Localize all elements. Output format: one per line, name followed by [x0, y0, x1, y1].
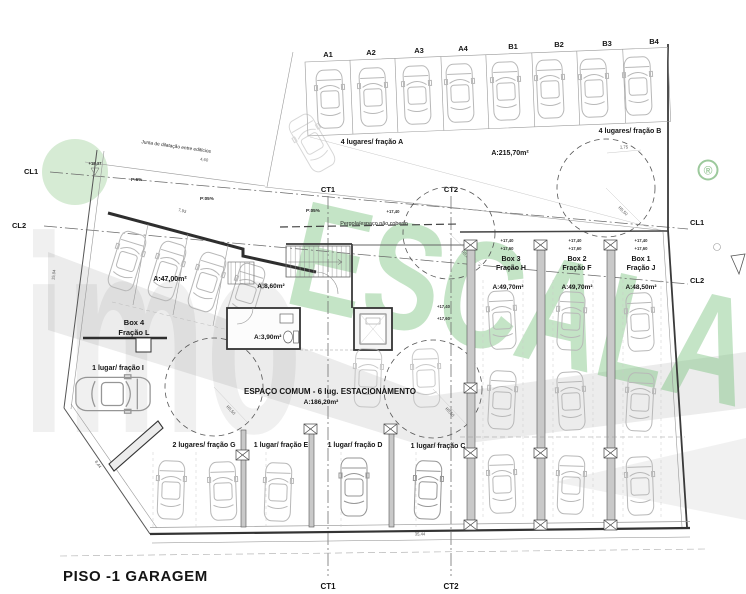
slope-2: P:05%: [200, 196, 214, 201]
bottom-dim-line: [152, 537, 690, 543]
watermark-swoosh-tail: [555, 438, 746, 520]
label-box1-fraction: Fração J: [627, 265, 656, 272]
stall-label-a3: A3: [414, 46, 424, 55]
sink-fixture: [280, 314, 293, 323]
stall-label-a2: A2: [366, 48, 376, 57]
axis-cl2-label-left: CL2: [12, 221, 26, 230]
marker-circle-icon: [714, 244, 721, 251]
label-common-2: A:186,20m²: [304, 399, 340, 406]
car-icon: [490, 61, 523, 120]
level-pergola: +17,40: [387, 209, 401, 214]
label-fracao-g: 2 lugares/ fração G: [172, 442, 236, 449]
stairs-landing: [228, 262, 254, 284]
label-common-1: ESPAÇO COMUM - 6 lug. ESTACIONAMENTO: [244, 387, 416, 396]
label-box4-fraction: Fração L: [118, 328, 150, 337]
label-box2-area: A:49,70m²: [561, 284, 593, 291]
dim-circle2: 1,75: [620, 145, 629, 150]
car-icon: [578, 58, 611, 117]
car-icon: [622, 56, 655, 115]
car-icon: [314, 69, 347, 128]
toilet-fixture: [284, 331, 293, 343]
axis-ct2-label-top: CT2: [444, 185, 458, 194]
stall-label-a4: A4: [458, 44, 468, 53]
label-box2-fraction: Fração F: [562, 265, 592, 272]
stall-label-b3: B3: [602, 39, 612, 48]
label-total-area: A:215,70m²: [491, 150, 529, 157]
dim-junta: 4,60: [200, 156, 209, 162]
slope-3: P:05%: [306, 208, 320, 213]
level-box2-a: +17,40: [569, 238, 583, 243]
stall-label-b1: B1: [508, 42, 518, 51]
label-box3-area: A:49,70m²: [492, 284, 524, 291]
label-fracao-e: 1 lugar/ fração E: [254, 442, 309, 449]
axis-cl1-label-right: CL1: [690, 218, 704, 227]
dim-bottom-total: 35,44: [415, 532, 426, 537]
registered-letter: ®: [704, 164, 713, 178]
toilet-tank: [294, 331, 299, 343]
floor-plan-svg: imo ESCALA ® CL1 CL2 CL1 CL2 CT1 CT2 CT1…: [0, 0, 746, 594]
level-box1-b: +17,60: [635, 246, 649, 251]
box-wall-b: [537, 250, 545, 527]
label-box1-area: A:48,50m²: [625, 284, 657, 291]
label-fracao-a: 4 lugares/ fração A: [341, 139, 403, 146]
note-junta: Junta de dilatação entre edifícios: [141, 139, 212, 155]
right-top-wall: [460, 231, 668, 232]
stall-wall-1: [241, 430, 246, 527]
stall-wall-3: [389, 426, 394, 527]
stall-label-b4: B4: [649, 37, 659, 46]
label-box3-name: Box 3: [501, 256, 520, 263]
label-fracao-c: 1 lugar/ fração C: [411, 443, 466, 450]
level-street: +18,37: [89, 161, 103, 166]
level-core-1: +17,40: [437, 304, 451, 309]
axis-cl1-label-left: CL1: [24, 167, 38, 176]
car-icon: [357, 67, 390, 126]
box-wall-c: [607, 250, 615, 527]
car-icon: [339, 458, 369, 516]
label-fracao-d: 1 lugar/ fração D: [328, 442, 383, 449]
label-fracao-i: 1 lugar/ fração I: [92, 365, 144, 372]
car-icon: [486, 454, 518, 513]
boundary-top-left: [267, 52, 293, 187]
label-fracao-b: 4 lugares/ fração B: [599, 128, 662, 135]
stall-label-b2: B2: [554, 40, 564, 49]
level-box2-b: +17,60: [569, 246, 583, 251]
stall-wall-2: [309, 426, 314, 527]
floor-plan-page: imo ESCALA ® CL1 CL2 CL1 CL2 CT1 CT2 CT1…: [0, 0, 746, 594]
car-icon: [285, 110, 340, 175]
car-icon: [401, 65, 434, 124]
level-core-2: +17,60: [437, 316, 451, 321]
note-pergola: Pergola/espaço não coberto: [340, 221, 407, 227]
car-icon: [534, 59, 567, 118]
label-box4-area: A:47,00m²: [153, 276, 187, 283]
car-icon: [412, 460, 444, 519]
box4-pillar: [136, 338, 151, 352]
axis-ct1-label-bottom: CT1: [320, 582, 336, 591]
slope-1: P:6%: [131, 177, 142, 182]
label-box4-name: Box 4: [124, 318, 145, 327]
stall-label-a1: A1: [323, 50, 333, 59]
axis-ct2-label-bottom: CT2: [443, 582, 459, 591]
dim-radius-2: R5,50: [617, 205, 629, 217]
label-hall-area: A:8,60m²: [257, 283, 285, 290]
label-wc-area: A:3,90m²: [254, 334, 282, 341]
level-box3-b: +17,60: [501, 246, 515, 251]
label-box3-fraction: Fração H: [496, 265, 526, 272]
label-box1-name: Box 1: [631, 256, 650, 263]
page-title: PISO -1 GARAGEM: [63, 568, 208, 585]
level-box1-a: +17,40: [635, 238, 649, 243]
car-icon: [444, 63, 477, 122]
label-box2-name: Box 2: [567, 256, 586, 263]
top-parking-row: A1 A2 A3 A4 B1 B2 B3 B4 4 lugares/ fraçã…: [285, 37, 671, 176]
axis-cl2-label-right: CL2: [690, 276, 704, 285]
bottom-dashed-line: [60, 549, 706, 556]
level-box3-a: +17,40: [501, 238, 515, 243]
axis-ct1-label-top: CT1: [321, 185, 335, 194]
